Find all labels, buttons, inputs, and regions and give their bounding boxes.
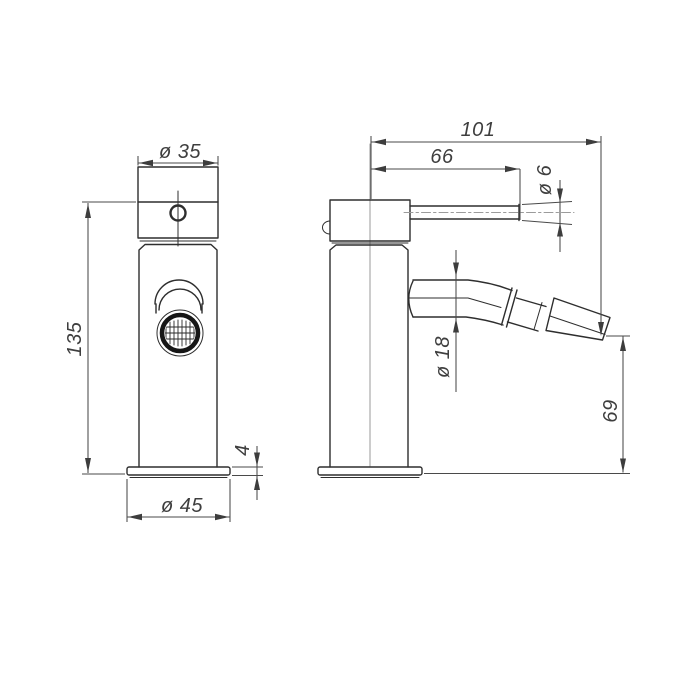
technical-drawing-canvas: ø 35 135 4 ø 45: [0, 0, 700, 700]
dim-lever-reach: 66: [430, 146, 454, 168]
side-view-faucet-outline: [318, 144, 610, 478]
dim-lever-diameter: ø 6: [534, 164, 556, 195]
faucet-dimension-drawing: ø 35 135 4 ø 45: [0, 0, 700, 700]
front-base: [127, 467, 230, 475]
side-spout: [409, 280, 610, 340]
side-view-dimensions: 101 66 ø 6 ø 18 6: [371, 119, 630, 474]
side-lever-rod: [404, 205, 574, 221]
dim-spout-tip-height: 69: [600, 399, 622, 422]
side-base: [318, 467, 422, 475]
front-view-faucet-outline: [127, 167, 230, 478]
front-aerator-mesh: [163, 320, 197, 346]
dim-total-depth: 101: [461, 119, 496, 141]
side-aerator: [546, 298, 610, 340]
side-button: [323, 221, 330, 234]
dim-spout-diameter: ø 18: [432, 336, 454, 378]
dim-base-diameter: ø 45: [161, 495, 203, 517]
dim-total-height: 135: [64, 321, 86, 356]
side-body: [330, 245, 408, 467]
dim-head-diameter: ø 35: [159, 141, 201, 163]
dim-base-thickness: 4: [232, 444, 254, 456]
